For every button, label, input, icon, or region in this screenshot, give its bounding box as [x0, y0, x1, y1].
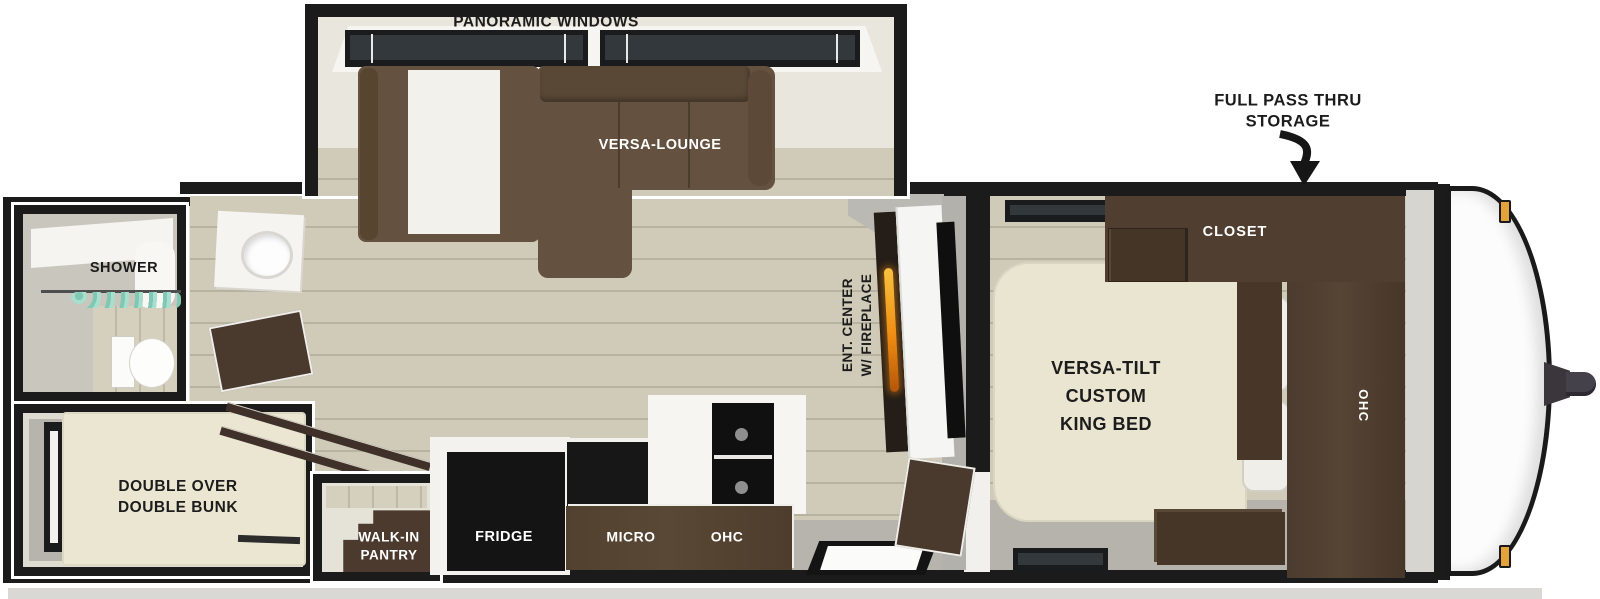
versa-lounge-label: VERSA-LOUNGE: [599, 136, 722, 156]
slideout-window-left: [345, 30, 588, 67]
micro-label: MICRO: [606, 528, 655, 547]
window-pane: [1018, 553, 1103, 565]
slideout-window-right: [600, 30, 860, 67]
window-mullion: [626, 34, 628, 63]
pass-thru-storage-label: FULL PASS THRU STORAGE: [1214, 91, 1362, 134]
sink-drain-bottom: [735, 481, 748, 494]
window-mullion: [564, 34, 566, 63]
fridge-label: FRIDGE: [475, 528, 533, 548]
window-mullion: [836, 34, 838, 63]
down-arrow-icon: [1266, 130, 1336, 190]
closet-doors: [1108, 228, 1188, 282]
window-mullion: [371, 34, 373, 63]
closet-label: CLOSET: [1203, 223, 1268, 243]
pantry-label: WALK-IN PANTRY: [358, 528, 419, 563]
kitchen-ohc-cabinet: [566, 506, 792, 570]
versa-lounge-arm: [748, 70, 772, 186]
window-pane: [605, 35, 855, 60]
marker-light-top: [1499, 200, 1511, 223]
ground-shadow: [8, 588, 1542, 599]
versa-lounge-back: [540, 66, 750, 102]
panoramic-windows-label: PANORAMIC WINDOWS: [453, 13, 639, 34]
bedroom-ohc-label: OHC: [1354, 389, 1372, 422]
sink-basin-divider: [714, 455, 772, 459]
closet-side-panel: [1237, 282, 1282, 460]
bedroom-ohc-cabinet: [1287, 250, 1405, 578]
fridge: [447, 452, 565, 571]
shower-label: SHOWER: [90, 259, 158, 279]
bedroom-window-bottom: [1013, 548, 1108, 572]
ent-center-label: ENT. CENTER W/ FIREPLACE: [839, 245, 877, 405]
bedroom-door-open: [894, 457, 975, 557]
king-bed-label: VERSA-TILT CUSTOM KING BED: [1051, 355, 1161, 439]
hitch-coupler: [1566, 372, 1596, 396]
bedroom-wall: [964, 182, 990, 472]
sofa-bed-mattress: [408, 70, 500, 234]
toilet-bowl: [129, 338, 175, 388]
entry-door-step: [820, 546, 924, 570]
bathroom-interior: [23, 214, 177, 392]
sink-drain-top: [735, 428, 748, 441]
marker-light-bottom: [1499, 545, 1511, 568]
bunk-window-pane: [50, 431, 58, 543]
window-pane: [350, 35, 583, 60]
shower-curtain: [71, 292, 181, 308]
versa-lounge-chaise: [538, 186, 632, 278]
floorplan-canvas: SHOWER DOUBLE OVER DOUBLE BUNK WALK-IN P…: [0, 0, 1600, 599]
bedroom-dresser: [1157, 512, 1285, 565]
vanity-sink-basin: [241, 231, 293, 279]
front-cap: [1446, 186, 1552, 576]
bunk-window: [44, 422, 64, 552]
kitchen-ohc-label: OHC: [711, 528, 744, 547]
bunk-label: DOUBLE OVER DOUBLE BUNK: [118, 477, 238, 519]
sofa-bed-arm: [360, 68, 378, 240]
pantry-floor: [326, 486, 427, 508]
